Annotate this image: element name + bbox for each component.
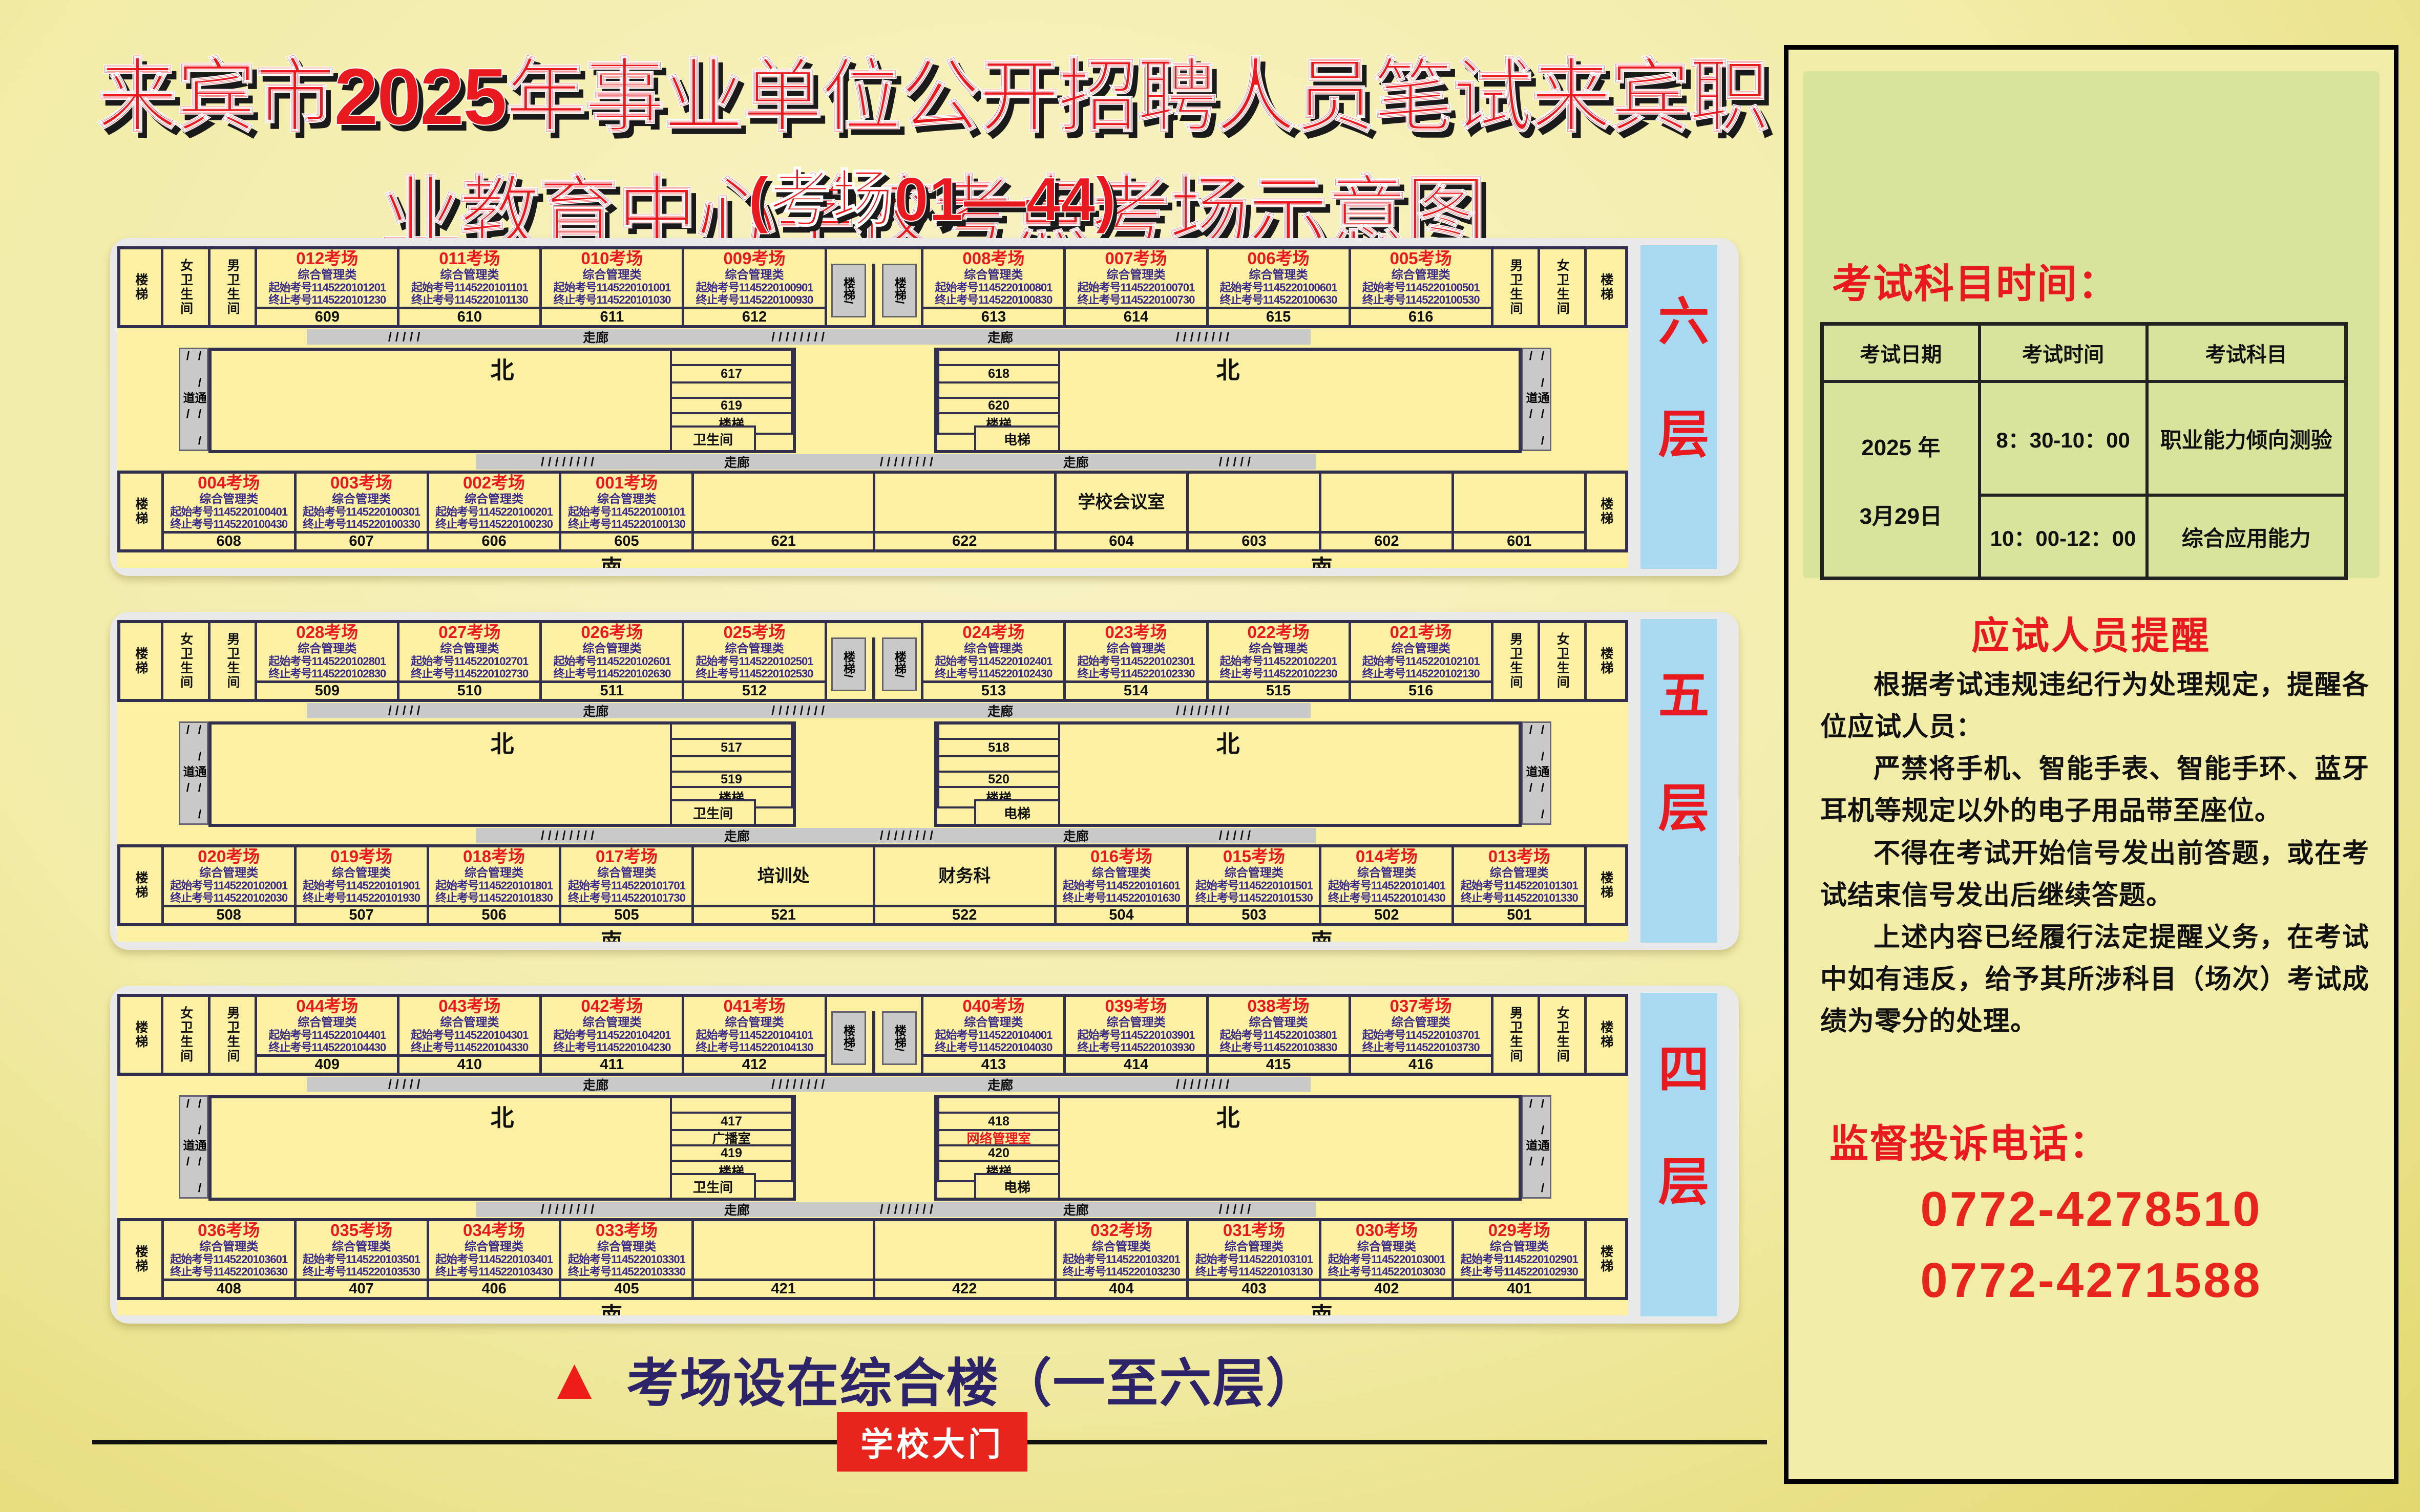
room-category: 综合管理类 — [582, 1016, 641, 1029]
room-start-id: 起始考号1145220101601 — [1063, 880, 1180, 892]
room-number: 403 — [1189, 1279, 1319, 1297]
room-number: 508 — [164, 905, 294, 923]
passage-label: / / /通道/ / / — [1522, 348, 1551, 451]
room-category: 综合管理类 — [199, 493, 258, 506]
room-end-id: 终止考号1145220103630 — [170, 1266, 287, 1279]
floor-5-south-wing: 楼梯 020考场 综合管理类 起始考号1145220102001 终止考号114… — [117, 844, 1628, 926]
room-title: 020考场 — [198, 847, 260, 866]
room-end-id: 终止考号1145220104330 — [411, 1041, 528, 1054]
room-number: 422 — [875, 1279, 1054, 1297]
room-title: 011考场 — [439, 249, 500, 268]
floor-6-core: / / /通道/ / / 北 617619楼梯 卫生间 北 618620楼梯 — [117, 346, 1628, 453]
room-title: 022考场 — [1248, 623, 1310, 642]
col-header-time: 考试时间 — [1980, 324, 2147, 381]
floor-5-building: 楼梯 女卫生间 男卫生间 028考场 综合管理类 起始考号11452201028… — [117, 620, 1628, 942]
stairwell-label: 楼梯 — [120, 1221, 161, 1297]
room-category: 综合管理类 — [1249, 1016, 1308, 1029]
room-number: 506 — [429, 905, 559, 923]
room-end-id: 终止考号1145220102030 — [170, 892, 287, 905]
room-start-id: 起始考号1145220100701 — [1078, 282, 1195, 294]
floor-4-plan: 楼梯 女卫生间 男卫生间 044考场 综合管理类 起始考号11452201044… — [110, 986, 1739, 1324]
room-number: 401 — [1454, 1279, 1584, 1297]
room-category: 综合管理类 — [964, 642, 1023, 655]
room-category: 综合管理类 — [1106, 268, 1165, 282]
wc-room: 卫生间 — [670, 1173, 756, 1200]
stairwell-label: 楼梯 — [1584, 997, 1625, 1073]
room-number: 507 — [297, 905, 427, 923]
room-number: 603 — [1189, 531, 1319, 549]
room-title: 017考场 — [596, 847, 658, 866]
room-start-id: 起始考号1145220103001 — [1328, 1253, 1445, 1266]
floor-4-core: / / /通道/ / / 北 417广播室419楼梯 卫生间 北 418网络管理 — [117, 1093, 1628, 1201]
room-number: 610 — [399, 307, 539, 325]
exam-room: 020考场 综合管理类 起始考号1145220102001 终止考号114522… — [161, 847, 294, 923]
courtyard-right: 北 418网络管理室420楼梯 电梯 — [934, 1095, 1522, 1201]
exam-room: 015考场 综合管理类 起始考号1145220101501 终止考号114522… — [1186, 847, 1319, 923]
room-start-id: 起始考号1145220103601 — [170, 1253, 287, 1266]
room-number: 404 — [1057, 1279, 1187, 1297]
room-title: 042考场 — [581, 997, 643, 1016]
room-title: 014考场 — [1356, 847, 1418, 866]
core-room: 619 — [670, 399, 793, 414]
room-end-id: 终止考号1145220102530 — [696, 668, 813, 680]
exam-room: 008考场 综合管理类 起始考号1145220100801 终止考号114522… — [921, 249, 1063, 325]
room-start-id: 起始考号1145220100401 — [170, 506, 287, 519]
floor-plan-area: 来宾市2025年事业单位公开招聘人员笔试来宾职业教育中心学校考点考场示意图 (考… — [87, 20, 1777, 1495]
room-category: 综合管理类 — [440, 1016, 499, 1029]
room-title: 044考场 — [296, 997, 358, 1016]
exam-room: 028考场 综合管理类 起始考号1145220102801 终止考号114522… — [255, 623, 397, 699]
room-number: 608 — [164, 531, 294, 549]
room-end-id: 终止考号1145220103030 — [1328, 1266, 1445, 1279]
room-title: 036考场 — [198, 1221, 260, 1240]
room-title: 021考场 — [1390, 623, 1452, 642]
room-category: 综合管理类 — [1225, 1240, 1283, 1253]
core-room-stack: 517519楼梯 — [670, 725, 793, 808]
room-number: 514 — [1066, 680, 1206, 699]
corridor: / / / / /走廊/ / / / / / / /走廊/ / / / / / … — [307, 1077, 1311, 1092]
room-number: 614 — [1066, 307, 1206, 325]
core-room: 620 — [937, 399, 1060, 414]
schedule-title: 考试科目时间： — [1832, 252, 2119, 309]
room-title: 032考场 — [1090, 1221, 1152, 1240]
south-labels: 南南 — [117, 552, 1628, 568]
room-end-id: 终止考号1145220102930 — [1461, 1266, 1578, 1279]
room-category: 综合管理类 — [332, 866, 391, 880]
room-end-id: 终止考号1145220104430 — [268, 1041, 386, 1054]
room-number: 402 — [1321, 1279, 1451, 1297]
room-number: 409 — [257, 1054, 397, 1073]
floor-5-north-wing: 楼梯 女卫生间 男卫生间 028考场 综合管理类 起始考号11452201028… — [117, 620, 1628, 702]
room-end-id: 终止考号1145220101630 — [1063, 892, 1180, 905]
room-end-id: 终止考号1145220100930 — [696, 294, 813, 307]
room-end-id: 终止考号1145220103430 — [435, 1266, 553, 1279]
room-category: 综合管理类 — [597, 1240, 656, 1253]
room-title: 010考场 — [581, 249, 643, 268]
south-labels: 南南 — [117, 1300, 1628, 1315]
room-title: 002考场 — [463, 474, 525, 493]
room-start-id: 起始考号1145220101001 — [553, 282, 670, 294]
room: 学校会议室 604 — [1054, 474, 1187, 549]
reminder-paragraph: 上述内容已经履行法定提醒义务，在考试中如有违反，给予其所涉科目（场次）考试成绩为… — [1820, 917, 2369, 1042]
exam-room: 042考场 综合管理类 起始考号1145220104201 终止考号114522… — [539, 997, 682, 1073]
room-end-id: 终止考号1145220101330 — [1461, 892, 1578, 905]
room-end-id: 终止考号1145220102230 — [1220, 668, 1337, 680]
core-room — [937, 384, 1060, 399]
room-number: 502 — [1321, 905, 1451, 923]
central-stair-gap: 楼梯/ 楼梯/ — [825, 623, 921, 699]
room-number: 510 — [399, 680, 539, 699]
exam-room: 017考场 综合管理类 起始考号1145220101701 终止考号114522… — [559, 847, 691, 923]
room-category: 综合管理类 — [298, 1016, 356, 1029]
room-title: 037考场 — [1390, 997, 1452, 1016]
room-category: 综合管理类 — [465, 866, 523, 880]
room-number: 516 — [1351, 680, 1491, 699]
school-gate-label: 学校大门 — [837, 1412, 1027, 1472]
room-title: 016考场 — [1090, 847, 1152, 866]
room-end-id: 终止考号1145220103730 — [1362, 1041, 1480, 1054]
room-number: 606 — [429, 531, 559, 549]
finance-office-room: 财务科 522 — [873, 847, 1054, 923]
exam-room: 004考场 综合管理类 起始考号1145220100401 终止考号114522… — [161, 474, 294, 549]
room-start-id: 起始考号1145220103901 — [1078, 1029, 1195, 1042]
room-start-id: 起始考号1145220104101 — [696, 1029, 813, 1042]
room-title: 039考场 — [1105, 997, 1167, 1016]
room-category: 综合管理类 — [597, 866, 656, 880]
exam-room: 014考场 综合管理类 起始考号1145220101401 终止考号114522… — [1319, 847, 1451, 923]
room-title: 025考场 — [723, 623, 785, 642]
exam-room: 022考场 综合管理类 起始考号1145220102201 终止考号114522… — [1206, 623, 1349, 699]
room-start-id: 起始考号1145220102101 — [1362, 655, 1480, 668]
male-wc-label: 男卫生间 — [208, 997, 255, 1073]
exam-room: 038考场 综合管理类 起始考号1145220103801 终止考号114522… — [1206, 997, 1349, 1073]
exam-room: 016考场 综合管理类 起始考号1145220101601 终止考号114522… — [1054, 847, 1187, 923]
exam-room: 041考场 综合管理类 起始考号1145220104101 终止考号114522… — [682, 997, 824, 1073]
room-category: 综合管理类 — [1249, 268, 1308, 282]
room-category: 综合管理类 — [1490, 1240, 1549, 1253]
exam-room: 021考场 综合管理类 起始考号1145220102101 终止考号114522… — [1349, 623, 1491, 699]
col-header-date: 考试日期 — [1822, 324, 1980, 381]
stairwell-label: 楼梯 — [120, 623, 161, 699]
exam-room: 023考场 综合管理类 起始考号1145220102301 终止考号114522… — [1063, 623, 1206, 699]
passage-label: / / /通道/ / / — [179, 1095, 208, 1199]
room-number: 512 — [684, 680, 824, 699]
room-number: 513 — [923, 680, 1063, 699]
passage-label: / / /通道/ / / — [179, 721, 208, 825]
exam-room: 039考场 综合管理类 起始考号1145220103901 终止考号114522… — [1063, 997, 1206, 1073]
room-start-id: 起始考号1145220103701 — [1362, 1029, 1480, 1042]
room-end-id: 终止考号1145220100830 — [935, 294, 1052, 307]
triangle-icon: ▲ — [545, 1350, 604, 1409]
core-room: 618 — [937, 366, 1060, 384]
room-start-id: 起始考号1145220100201 — [435, 506, 553, 519]
room-start-id: 起始考号1145220104001 — [935, 1029, 1052, 1042]
room-number: 414 — [1066, 1054, 1206, 1073]
room: 601 — [1451, 474, 1584, 549]
room-category: 综合管理类 — [725, 268, 784, 282]
room-title: 004考场 — [198, 474, 260, 493]
wall-divider — [872, 1011, 875, 1075]
core-room: 广播室 — [670, 1131, 793, 1146]
training-office-room: 培训处 521 — [691, 847, 873, 923]
elevator-room: 电梯 — [974, 1173, 1060, 1200]
reminder-paragraph: 不得在考试开始信号发出前答题，或在考试结束信号发出后继续答题。 — [1820, 833, 2369, 917]
footer-note-text: 考场设在综合楼（一至六层） — [626, 1341, 1319, 1417]
room-start-id: 起始考号1145220102901 — [1461, 1253, 1578, 1266]
corridor: / / / / / / / /走廊/ / / / / / / /走廊/ / / … — [476, 454, 1316, 470]
room-start-id: 起始考号1145220100101 — [568, 506, 685, 519]
room-number: 601 — [1454, 531, 1584, 549]
room-end-id: 终止考号1145220104230 — [553, 1041, 670, 1054]
exam-room: 025考场 综合管理类 起始考号1145220102501 终止考号114522… — [682, 623, 824, 699]
room-title: 030考场 — [1356, 1221, 1418, 1240]
stairwell-label: 楼梯/ — [882, 1011, 917, 1065]
exam-room: 043考场 综合管理类 起始考号1145220104301 终止考号114522… — [397, 997, 539, 1073]
exam-date-cell: 2025 年 3月29日 — [1822, 381, 1980, 578]
room-number: 503 — [1189, 905, 1319, 923]
room-title: 024考场 — [962, 623, 1024, 642]
female-wc-label: 女卫生间 — [1538, 249, 1584, 325]
room-title: 035考场 — [330, 1221, 392, 1240]
room-start-id: 起始考号1145220103101 — [1195, 1253, 1313, 1266]
core-room: 网络管理室 — [937, 1131, 1060, 1146]
room-number: 607 — [297, 531, 427, 549]
elevator-room: 电梯 — [974, 425, 1060, 452]
exam-room: 012考场 综合管理类 起始考号1145220101201 终止考号114522… — [255, 249, 397, 325]
room-number: 415 — [1209, 1054, 1349, 1073]
room-title: 001考场 — [596, 474, 658, 493]
room-number: 421 — [694, 1279, 873, 1297]
complaint-phone-numbers: 0772-42785100772-4271588 — [1788, 1174, 2394, 1316]
room-title: 026考场 — [581, 623, 643, 642]
room-title: 034考场 — [463, 1221, 525, 1240]
stairwell-label: 楼梯/ — [831, 264, 866, 317]
room-start-id: 起始考号1145220101101 — [411, 282, 528, 294]
core-room: 617 — [670, 366, 793, 384]
exam-room: 033考场 综合管理类 起始考号1145220103301 终止考号114522… — [559, 1221, 691, 1297]
core-room — [670, 1098, 793, 1114]
room-category: 综合管理类 — [1092, 866, 1151, 880]
room-start-id: 起始考号1145220100301 — [303, 506, 420, 519]
stairwell-label: 楼梯 — [120, 474, 161, 549]
exam-room: 011考场 综合管理类 起始考号1145220101101 终止考号114522… — [397, 249, 539, 325]
exam-room: 040考场 综合管理类 起始考号1145220104001 终止考号114522… — [921, 997, 1063, 1073]
room-title: 018考场 — [463, 847, 525, 866]
room-start-id: 起始考号1145220102601 — [553, 655, 670, 668]
exam-room: 002考场 综合管理类 起始考号1145220100201 终止考号114522… — [427, 474, 559, 549]
room-category: 综合管理类 — [1106, 642, 1165, 655]
exam-time-cell: 8：30-10：00 — [1980, 381, 2147, 495]
core-room-stack: 618620楼梯 — [937, 351, 1060, 435]
exam-subject-cell: 综合应用能力 — [2147, 495, 2346, 578]
corridor: / / / / /走廊/ / / / / / / /走廊/ / / / / / … — [307, 703, 1311, 718]
phone-number: 0772-4278510 — [1788, 1174, 2394, 1245]
male-wc-label: 男卫生间 — [1491, 249, 1538, 325]
room-number: 604 — [1057, 531, 1187, 549]
room-622: 622 — [873, 474, 1054, 549]
room-title: 031考场 — [1223, 1221, 1285, 1240]
room-category: 综合管理类 — [199, 866, 258, 880]
room-start-id: 起始考号1145220103801 — [1220, 1029, 1337, 1042]
exam-room: 030考场 综合管理类 起始考号1145220103001 终止考号114522… — [1319, 1221, 1451, 1297]
room-number: 413 — [923, 1054, 1063, 1073]
exam-room: 037考场 综合管理类 起始考号1145220103701 终止考号114522… — [1349, 997, 1491, 1073]
room-end-id: 终止考号1145220102830 — [268, 668, 386, 680]
exam-room: 024考场 综合管理类 起始考号1145220102401 终止考号114522… — [921, 623, 1063, 699]
core-room — [670, 757, 793, 773]
floor-4-building: 楼梯 女卫生间 男卫生间 044考场 综合管理类 起始考号11452201044… — [117, 994, 1628, 1315]
room-number: 613 — [923, 307, 1063, 325]
floor-5-plan: 楼梯 女卫生间 男卫生间 028考场 综合管理类 起始考号11452201028… — [110, 612, 1739, 950]
exam-room: 031考场 综合管理类 起始考号1145220103101 终止考号114522… — [1186, 1221, 1319, 1297]
room-number: 416 — [1351, 1054, 1491, 1073]
room: 602 — [1319, 474, 1451, 549]
room-end-id: 终止考号1145220102630 — [553, 668, 670, 680]
room-number: 605 — [561, 531, 691, 549]
floor-6-building: 楼梯 女卫生间 男卫生间 012考场 综合管理类 起始考号11452201012… — [117, 246, 1628, 568]
room-number: 609 — [257, 307, 397, 325]
exam-room: 035考场 综合管理类 起始考号1145220103501 终止考号114522… — [294, 1221, 427, 1297]
floor-4-label: 四层 — [1640, 993, 1717, 1316]
exam-room: 005考场 综合管理类 起始考号1145220100501 终止考号114522… — [1349, 249, 1491, 325]
room-title: 040考场 — [962, 997, 1024, 1016]
room-start-id: 起始考号1145220101501 — [1195, 880, 1313, 892]
female-wc-label: 女卫生间 — [1538, 623, 1584, 699]
room-category: 综合管理类 — [597, 493, 656, 506]
room-end-id: 终止考号1145220102730 — [411, 668, 528, 680]
room-category: 综合管理类 — [298, 642, 356, 655]
stairwell-label: 楼梯 — [120, 249, 161, 325]
room-number: 621 — [694, 531, 873, 549]
room-category: 综合管理类 — [1225, 866, 1283, 880]
core-room — [937, 351, 1060, 366]
room-end-id: 终止考号1145220100130 — [568, 518, 685, 531]
room-end-id: 终止考号1145220104030 — [935, 1041, 1052, 1054]
courtyard-left: 北 517519楼梯 卫生间 — [208, 721, 796, 827]
room-end-id: 终止考号1145220103830 — [1220, 1041, 1337, 1054]
core-room — [937, 725, 1060, 740]
room-end-id: 终止考号1145220100330 — [303, 518, 420, 531]
room-category: 综合管理类 — [582, 642, 641, 655]
elevator-room: 电梯 — [974, 799, 1060, 826]
core-room — [670, 351, 793, 366]
exam-room: 019考场 综合管理类 起始考号1145220101901 终止考号114522… — [294, 847, 427, 923]
room-end-id: 终止考号1145220101430 — [1328, 892, 1445, 905]
room-category: 综合管理类 — [440, 268, 499, 282]
exam-venue-poster: 来宾市2025年事业单位公开招聘人员笔试来宾职业教育中心学校考点考场示意图 (考… — [0, 0, 2420, 1512]
room-start-id: 起始考号1145220100501 — [1362, 282, 1480, 294]
exam-room: 029考场 综合管理类 起始考号1145220102901 终止考号114522… — [1451, 1221, 1584, 1297]
room-category: 综合管理类 — [332, 1240, 391, 1253]
room-end-id: 终止考号1145220101730 — [568, 892, 685, 905]
wc-room: 卫生间 — [670, 799, 756, 826]
room-number: 405 — [561, 1279, 691, 1297]
room-title: 007考场 — [1105, 249, 1167, 268]
room-number: 408 — [164, 1279, 294, 1297]
male-wc-label: 男卫生间 — [208, 623, 255, 699]
exam-room: 032考场 综合管理类 起始考号1145220103201 终止考号114522… — [1054, 1221, 1187, 1297]
stairwell-label: 楼梯 — [1584, 474, 1625, 549]
room-end-id: 终止考号1145220103530 — [303, 1266, 420, 1279]
room-start-id: 起始考号1145220101901 — [303, 880, 420, 892]
exam-time-cell: 10：00-12：00 — [1980, 495, 2147, 578]
room-category: 综合管理类 — [199, 1240, 258, 1253]
stairwell-label: 楼梯/ — [882, 637, 917, 691]
room-title: 027考场 — [438, 623, 500, 642]
room-number: 410 — [399, 1054, 539, 1073]
room-start-id: 起始考号1145220103401 — [435, 1253, 553, 1266]
room-start-id: 起始考号1145220102701 — [411, 655, 528, 668]
courtyard-right: 北 618620楼梯 电梯 — [934, 348, 1522, 453]
room-start-id: 起始考号1145220100901 — [696, 282, 813, 294]
floor-5-label: 五层 — [1640, 619, 1717, 943]
room-title: 003考场 — [330, 474, 392, 493]
floor-6-label: 六层 — [1640, 245, 1717, 569]
core-room-stack: 617619楼梯 — [670, 351, 793, 435]
central-stair-gap: 楼梯/ 楼梯/ — [825, 997, 921, 1073]
room-category: 综合管理类 — [582, 268, 641, 282]
room-title: 023考场 — [1105, 623, 1167, 642]
room-start-id: 起始考号1145220103201 — [1063, 1253, 1180, 1266]
schedule-table: 考试日期 考试时间 考试科目 2025 年 3月29日 8：30-10：00 职… — [1820, 322, 2348, 580]
room-title: 033考场 — [596, 1221, 658, 1240]
exam-room: 003考场 综合管理类 起始考号1145220100301 终止考号114522… — [294, 474, 427, 549]
room-category: 综合管理类 — [1392, 1016, 1450, 1029]
room-start-id: 起始考号1145220102501 — [696, 655, 813, 668]
stairwell-label: 楼梯/ — [831, 1011, 866, 1065]
info-panel: 考试科目时间： 考试日期 考试时间 考试科目 2025 年 3月29日 8：30… — [1784, 45, 2398, 1484]
room-number: 622 — [875, 531, 1054, 549]
room-number: 616 — [1351, 307, 1491, 325]
room-end-id: 终止考号1145220101130 — [411, 294, 528, 307]
floor-6-plan: 楼梯 女卫生间 男卫生间 012考场 综合管理类 起始考号11452201012… — [110, 238, 1739, 576]
room-start-id: 起始考号1145220104301 — [411, 1029, 528, 1042]
room-title: 041考场 — [723, 997, 785, 1016]
stairwell-label: 楼梯/ — [831, 637, 866, 691]
exam-room: 013考场 综合管理类 起始考号1145220101301 终止考号114522… — [1451, 847, 1584, 923]
room-end-id: 终止考号1145220104130 — [696, 1041, 813, 1054]
core-room: 520 — [937, 773, 1060, 788]
female-wc-label: 女卫生间 — [1538, 997, 1584, 1073]
core-room-stack: 417广播室419楼梯 — [670, 1098, 793, 1182]
core-room-stack: 418网络管理室420楼梯 — [937, 1098, 1060, 1182]
room-category: 综合管理类 — [1392, 268, 1450, 282]
courtyard-left: 北 617619楼梯 卫生间 — [208, 348, 796, 453]
courtyard-right: 北 518520楼梯 电梯 — [934, 721, 1522, 827]
room-421: 421 — [691, 1221, 873, 1297]
exam-subject-cell: 职业能力倾向测验 — [2147, 381, 2346, 495]
stairwell-label: 楼梯 — [1584, 249, 1625, 325]
stairwell-label: 楼梯 — [120, 847, 161, 923]
reminder-paragraph: 根据考试违规违纪行为处理规定，提醒各位应试人员： — [1820, 664, 2369, 748]
exam-room: 044考场 综合管理类 起始考号1145220104401 终止考号114522… — [255, 997, 397, 1073]
room-number: 511 — [542, 680, 682, 699]
central-stair-gap: 楼梯/ 楼梯/ — [825, 249, 921, 325]
room-title: 006考场 — [1248, 249, 1310, 268]
room-end-id: 终止考号1145220101830 — [435, 892, 553, 905]
room-category: 综合管理类 — [332, 493, 391, 506]
exam-room: 026考场 综合管理类 起始考号1145220102601 终止考号114522… — [539, 623, 682, 699]
room-category: 综合管理类 — [1490, 866, 1549, 880]
wall-divider — [872, 264, 875, 328]
room-category: 综合管理类 — [1357, 866, 1416, 880]
room-title: 013考场 — [1488, 847, 1550, 866]
room-start-id: 起始考号1145220101701 — [568, 880, 685, 892]
room-category: 综合管理类 — [1106, 1016, 1165, 1029]
room-category: 综合管理类 — [465, 493, 523, 506]
room-start-id: 起始考号1145220102201 — [1220, 655, 1337, 668]
floor-6-north-wing: 楼梯 女卫生间 男卫生间 012考场 综合管理类 起始考号11452201012… — [117, 246, 1628, 328]
